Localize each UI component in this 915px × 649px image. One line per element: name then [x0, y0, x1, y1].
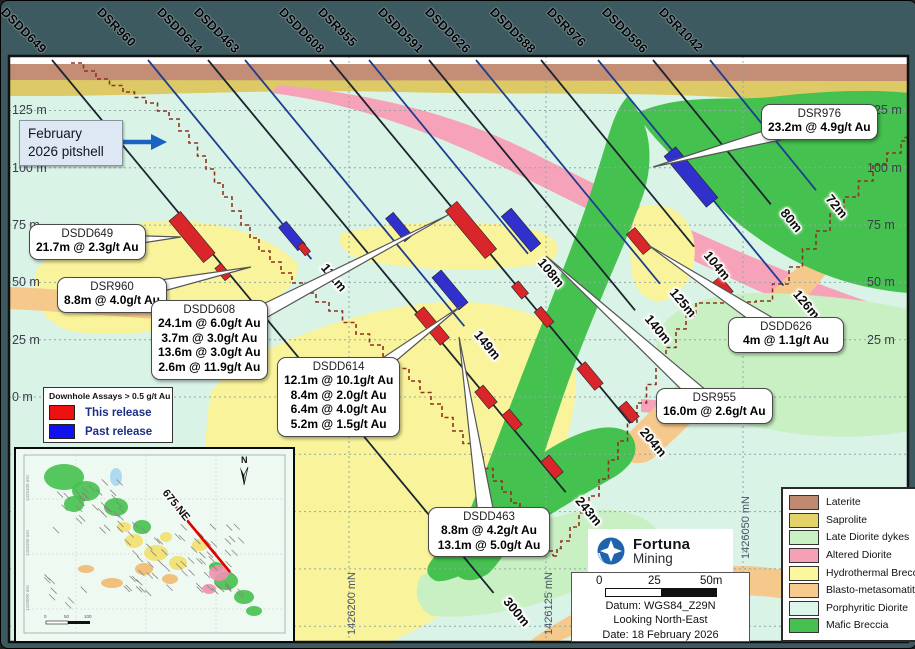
callout-title: DSDD649: [36, 228, 139, 240]
location-inset-map: 1426400 mN1426200 mN1426000 mN675 NEN050…: [14, 447, 295, 643]
northing-1426125: 1426125 mN: [543, 572, 555, 635]
inset-axis-label: 1426000 mN: [25, 585, 30, 611]
inset-geology-blob: [246, 606, 262, 616]
cross-section-figure: 300m111m243m149m204m108m140m125m104m126m…: [0, 0, 915, 649]
callout-assay-line: 8.8m @ 4.0g/t Au: [64, 293, 160, 308]
assay-legend-item: Past release: [49, 424, 167, 439]
elev-right-75 m: 75 m: [867, 218, 895, 232]
laterite-area: [9, 63, 908, 81]
callout-assay-line: 6.4m @ 4.0g/t Au: [284, 402, 393, 417]
callout-title: DSDD463: [435, 511, 543, 523]
callout-assay-line: 21.7m @ 2.3g/t Au: [36, 240, 139, 255]
callout-assay-line: 23.2m @ 4.9g/t Au: [768, 120, 871, 135]
callout-assay-line: 24.1m @ 6.0g/t Au: [158, 316, 261, 331]
geo-legend-item: Saprolite: [789, 512, 915, 530]
geo-legend-label: Hydrothermal Breccia: [826, 568, 915, 579]
inset-geology-blob: [133, 520, 151, 534]
pitshell-callout-line2: 2026 pitshell: [28, 143, 114, 161]
inset-geology-blob: [78, 565, 94, 573]
geo-legend-swatch: [789, 513, 819, 528]
geo-legend-item: Porphyritic Diorite: [789, 600, 915, 618]
callout-dsdd614: DSDD61412.1m @ 10.1g/t Au8.4m @ 2.0g/t A…: [277, 357, 400, 437]
inset-geology-blob: [162, 574, 178, 584]
assay-legend-label: This release: [85, 407, 151, 419]
geo-legend-label: Altered Diorite: [826, 550, 892, 561]
geo-legend-swatch: [789, 548, 819, 563]
geo-legend-label: Laterite: [826, 497, 861, 508]
callout-assay-line: 3.7m @ 3.0g/t Au: [158, 331, 261, 346]
elev-right-50 m: 50 m: [867, 275, 895, 289]
callout-assay-line: 5.2m @ 1.5g/t Au: [284, 417, 393, 432]
elev-left-50 m: 50 m: [12, 275, 40, 289]
callout-dsr976: DSR97623.2m @ 4.9g/t Au: [761, 104, 878, 140]
geo-legend-label: Saprolite: [826, 515, 867, 526]
callout-assay-line: 4m @ 1.1g/t Au: [735, 333, 837, 348]
geo-legend-label: Mafic Breccia: [826, 620, 888, 631]
fortuna-logo-icon: [596, 536, 626, 566]
geo-legend-item: Altered Diorite: [789, 547, 915, 565]
inset-axis-label: 1426400 mN: [25, 475, 30, 501]
inset-geology-blob: [169, 556, 187, 570]
elev-right-100 m: 100 m: [867, 161, 902, 175]
callout-assay-line: 8.8m @ 4.2g/t Au: [435, 523, 543, 538]
callout-dsr955: DSR95516.0m @ 2.6g/t Au: [656, 388, 773, 424]
scale-tick-50: 50m: [700, 575, 722, 587]
svg-text:50: 50: [64, 614, 70, 619]
callout-assay-line: 12.1m @ 10.1g/t Au: [284, 373, 393, 388]
inset-geology-blob: [202, 584, 216, 594]
logo-name: Fortuna: [633, 537, 690, 552]
geo-legend-item: Hydrothermal Breccia: [789, 564, 915, 582]
looking-text: Looking North-East: [572, 613, 749, 627]
inset-geology-blob: [101, 578, 123, 588]
geo-legend-swatch: [789, 566, 819, 581]
geology-legend: LateriteSaproliteLate Diorite dykesAlter…: [781, 487, 915, 642]
pitshell-callout-line1: February: [28, 125, 114, 143]
geo-legend-label: Porphyritic Diorite: [826, 603, 908, 614]
inset-geology-blob: [125, 534, 143, 548]
company-logo: Fortuna Mining: [588, 529, 733, 573]
geo-legend-swatch: [789, 618, 819, 633]
datum-text: Datum: WGS84_Z29N: [572, 599, 749, 613]
svg-text:100: 100: [84, 614, 92, 619]
geo-legend-item: Blasto-metasomatite: [789, 582, 915, 600]
scale-bar: [605, 588, 717, 597]
callout-title: DSR960: [64, 281, 160, 293]
inset-axis-label: 1426200 mN: [25, 530, 30, 556]
geo-legend-item: Mafic Breccia: [789, 617, 915, 635]
inset-geology-blob: [144, 545, 168, 561]
inset-geology-blob: [117, 522, 131, 532]
geo-legend-label: Blasto-metasomatite: [826, 585, 915, 596]
callout-title: DSDD614: [284, 361, 393, 373]
elev-left-0 m: 0 m: [12, 390, 33, 404]
inset-north-label: N: [241, 455, 248, 465]
callout-assay-line: 2.6m @ 11.9g/t Au: [158, 360, 261, 375]
geo-legend-label: Late Diorite dykes: [826, 532, 909, 543]
assay-legend-title: Downhole Assays > 0.5 g/t Au: [49, 391, 167, 401]
pitshell-callout: February 2026 pitshell: [19, 120, 123, 166]
callout-title: DSDD608: [158, 304, 261, 316]
elev-right-25 m: 25 m: [867, 333, 895, 347]
geo-legend-swatch: [789, 583, 819, 598]
inset-geology-blob: [160, 532, 172, 542]
date-text: Date: 18 February 2026: [572, 628, 749, 642]
callout-dsdd608: DSDD60824.1m @ 6.0g/t Au3.7m @ 3.0g/t Au…: [151, 300, 268, 380]
callout-title: DSR976: [768, 108, 871, 120]
callout-assay-line: 13.1m @ 5.0g/t Au: [435, 538, 543, 553]
map-info-panel: 0 25 50m Datum: WGS84_Z29N Looking North…: [571, 572, 750, 642]
elev-left-25 m: 25 m: [12, 333, 40, 347]
scale-tick-25: 25: [648, 575, 661, 587]
assay-legend-swatch: [49, 424, 75, 439]
callout-dsdd463: DSDD4638.8m @ 4.2g/t Au13.1m @ 5.0g/t Au: [428, 507, 550, 557]
geo-legend-item: Laterite: [789, 494, 915, 512]
callout-assay-line: 8.4m @ 2.0g/t Au: [284, 388, 393, 403]
callout-dsdd649: DSDD64921.7m @ 2.3g/t Au: [29, 224, 146, 260]
callout-title: DSDD626: [735, 321, 837, 333]
logo-sub: Mining: [633, 552, 690, 566]
geo-legend-swatch: [789, 530, 819, 545]
callout-assay-line: 16.0m @ 2.6g/t Au: [663, 404, 766, 419]
northing-1426200: 1426200 mN: [346, 572, 358, 635]
northing-1426050: 1426050 mN: [740, 496, 752, 559]
elev-left-125 m: 125 m: [12, 103, 47, 117]
assay-legend-label: Past release: [85, 426, 152, 438]
inset-map-canvas: 1426400 mN1426200 mN1426000 mN675 NEN050…: [16, 449, 293, 641]
assay-legend: Downhole Assays > 0.5 g/t Au This releas…: [43, 387, 173, 443]
geo-legend-swatch: [789, 601, 819, 616]
geo-legend-swatch: [789, 495, 819, 510]
callout-assay-line: 13.6m @ 3.0g/t Au: [158, 345, 261, 360]
callout-dsdd626: DSDD6264m @ 1.1g/t Au: [728, 317, 844, 353]
geo-legend-item: Late Diorite dykes: [789, 529, 915, 547]
assay-legend-swatch: [49, 405, 75, 420]
scale-tick-0: 0: [596, 575, 602, 587]
callout-title: DSR955: [663, 392, 766, 404]
assay-legend-item: This release: [49, 405, 167, 420]
